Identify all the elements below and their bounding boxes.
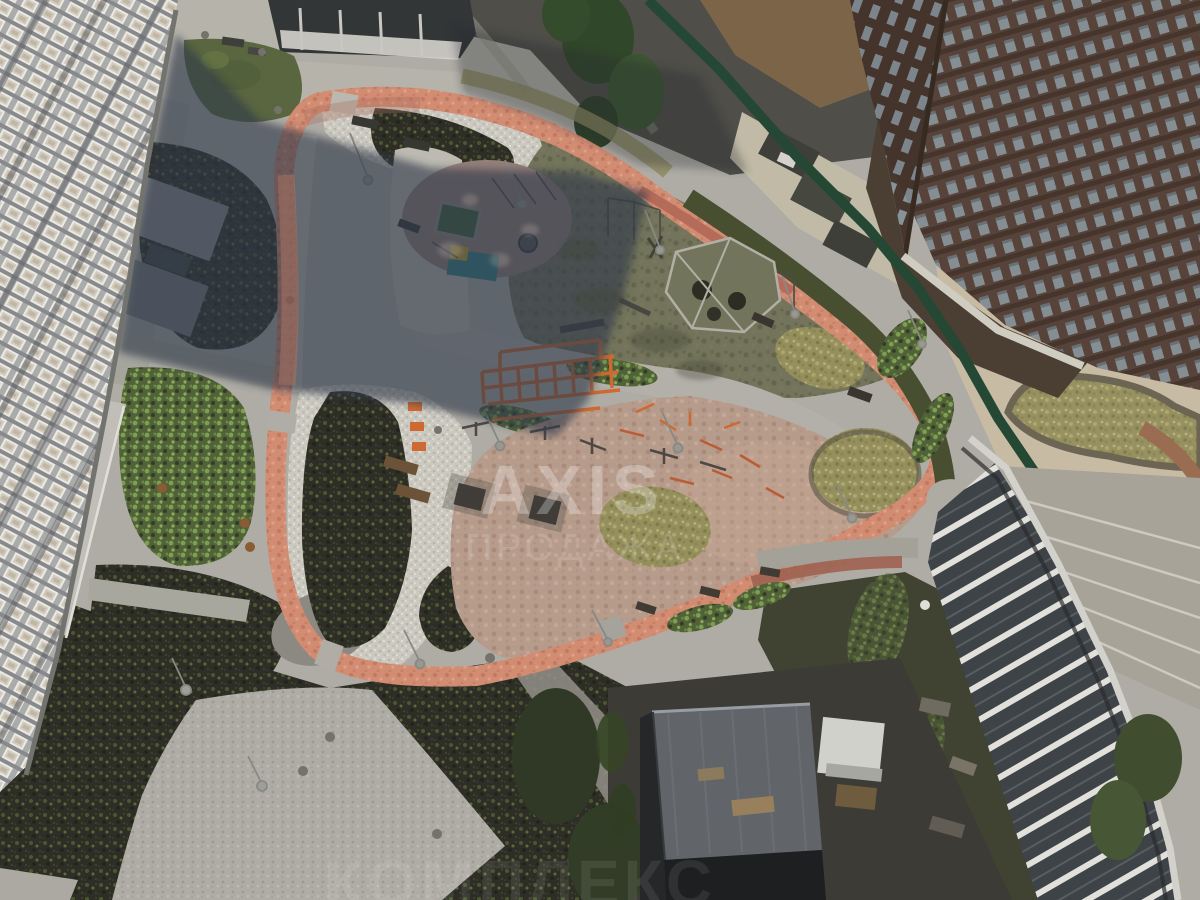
svg-text:КОМПЛЕКС: КОМПЛЕКС bbox=[324, 847, 716, 900]
svg-text:ПРОДАЖА: ПРОДАЖА bbox=[465, 527, 685, 569]
svg-text:AXIS: AXIS bbox=[480, 451, 663, 529]
